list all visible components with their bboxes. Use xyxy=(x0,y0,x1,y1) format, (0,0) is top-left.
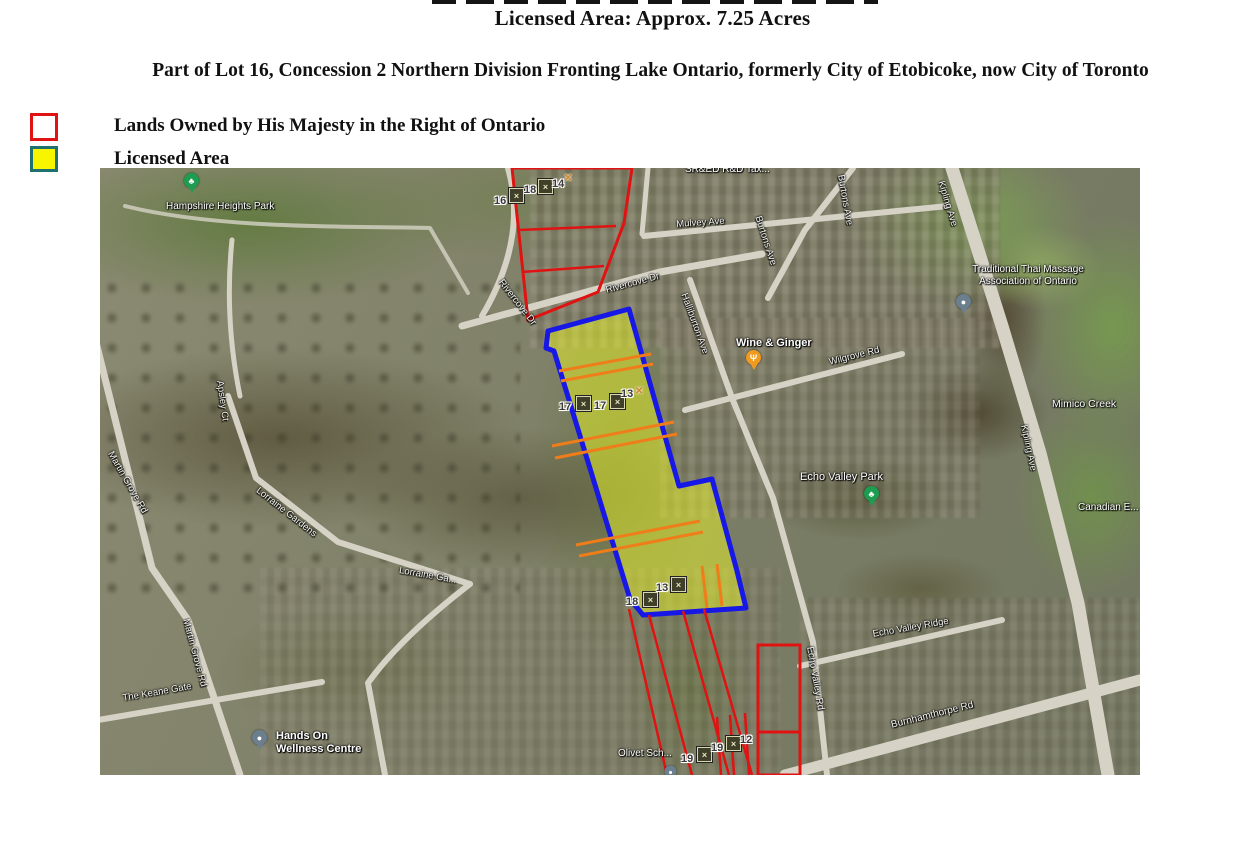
poi-label-hands-on-wellness: Hands On Wellness Centre xyxy=(276,730,361,755)
document-page: Licensed Area: Approx. 7.25 Acres Part o… xyxy=(0,0,1247,847)
park-pin-icon: ♣ xyxy=(864,486,879,501)
business-pin-icon: ● xyxy=(252,730,267,745)
photo-marker-number: 18 xyxy=(626,596,638,608)
x-marker-icon: × xyxy=(635,382,643,398)
photo-marker-box-icon: × xyxy=(671,577,686,592)
crown-parcel-divider xyxy=(522,266,604,272)
photo-marker-box-icon: × xyxy=(726,736,741,751)
photo-marker-number: 19 xyxy=(681,753,693,765)
poi-label-thai-massage: Traditional Thai Massage Association of … xyxy=(948,264,1108,287)
legend-swatch-licensed-area xyxy=(30,146,58,172)
photo-marker-number: 12 xyxy=(740,734,752,746)
legend-swatch-crown-lands xyxy=(30,113,58,141)
photo-marker-box-icon: × xyxy=(538,179,553,194)
photo-marker-number: 17 xyxy=(559,401,571,413)
poi-label-canadian: Canadian E... xyxy=(1078,502,1139,514)
poi-label-sred: SR&ED R&D Tax... xyxy=(685,168,770,176)
photo-marker-number: 14 xyxy=(552,178,564,190)
photo-marker-number: 13 xyxy=(656,582,668,594)
restaurant-pin-icon: Ψ xyxy=(746,350,761,365)
overlay-layer xyxy=(100,168,1140,775)
photo-marker-number: 13 xyxy=(621,388,633,400)
water-label-mimico-creek: Mimico Creek xyxy=(1052,398,1116,410)
poi-label-wine-ginger: Wine & Ginger xyxy=(736,337,812,350)
satellite-map: Hampshire Heights Park SR&ED R&D Tax... … xyxy=(100,168,1140,775)
business-pin-icon: ● xyxy=(956,294,971,309)
photo-marker-number: 17 xyxy=(594,400,606,412)
photo-marker-box-icon: × xyxy=(697,747,712,762)
legend-label-crown-lands: Lands Owned by His Majesty in the Right … xyxy=(114,115,545,137)
crown-parcel-divider xyxy=(518,226,616,230)
page-title: Licensed Area: Approx. 7.25 Acres xyxy=(29,6,1247,31)
photo-marker-box-icon: × xyxy=(643,592,658,607)
photo-marker-box-icon: × xyxy=(576,396,591,411)
park-pin-icon: ♣ xyxy=(184,173,199,188)
photo-marker-number: 18 xyxy=(524,184,536,196)
photo-marker-box-icon: × xyxy=(509,188,524,203)
page-heading: Part of Lot 16, Concession 2 Northern Di… xyxy=(27,60,1247,82)
park-label-echo-valley: Echo Valley Park xyxy=(800,471,883,484)
x-marker-icon: × xyxy=(564,169,572,185)
photo-marker-number: 19 xyxy=(711,742,723,754)
poi-label-olivet-school: Olivet Sch... xyxy=(618,748,672,760)
school-pin-icon: ● xyxy=(665,766,677,776)
park-label-hampshire-heights: Hampshire Heights Park xyxy=(166,201,274,213)
clipped-text-remnant xyxy=(432,0,878,4)
legend-label-licensed-area: Licensed Area xyxy=(114,148,229,170)
photo-marker-number: 16 xyxy=(494,195,506,207)
